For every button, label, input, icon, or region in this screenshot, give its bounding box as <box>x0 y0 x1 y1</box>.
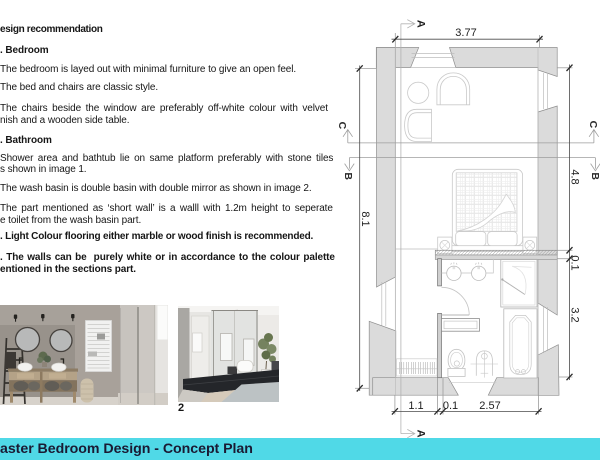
svg-text:A: A <box>415 430 427 438</box>
svg-text:1.1: 1.1 <box>408 400 423 412</box>
svg-text:8.1: 8.1 <box>359 211 371 226</box>
svg-text:0.1: 0.1 <box>569 255 581 270</box>
svg-text:3.77: 3.77 <box>455 27 476 39</box>
svg-text:3.2: 3.2 <box>569 307 581 322</box>
svg-text:C: C <box>336 122 348 130</box>
svg-text:B: B <box>589 172 600 180</box>
svg-text:A: A <box>415 20 427 28</box>
svg-text:0.1: 0.1 <box>443 400 458 412</box>
svg-text:4.8: 4.8 <box>569 169 581 184</box>
svg-text:2.57: 2.57 <box>479 400 500 412</box>
svg-text:C: C <box>587 121 599 129</box>
svg-text:B: B <box>342 172 354 180</box>
